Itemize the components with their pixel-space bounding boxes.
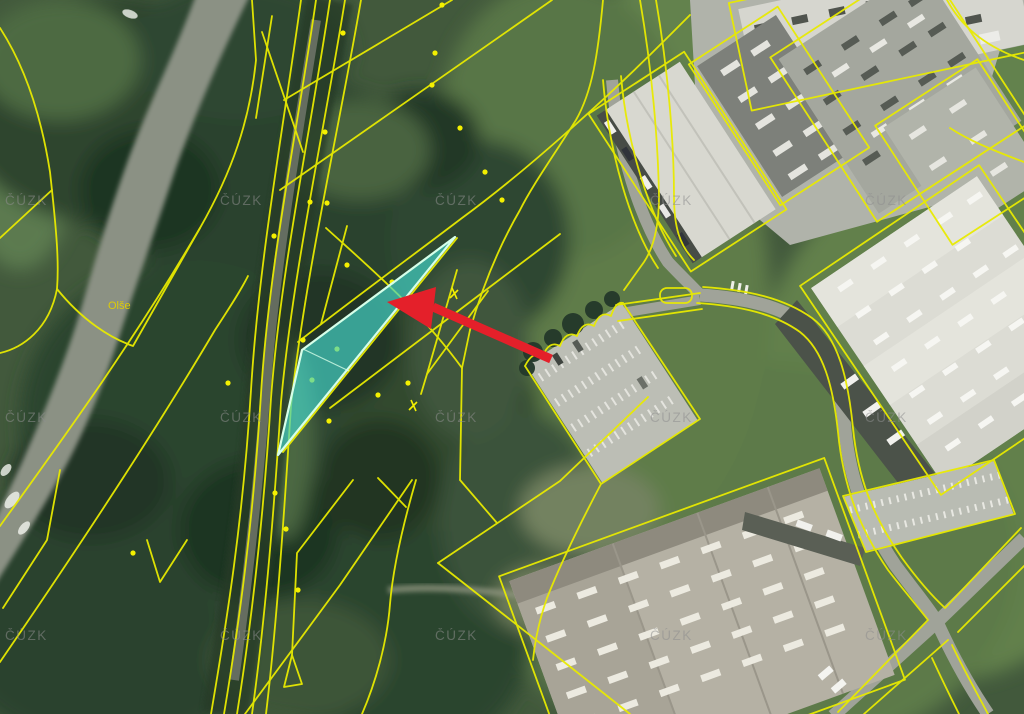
cuzk-watermark: ČÚZK: [220, 628, 263, 643]
cuzk-watermark: ČÚZK: [435, 410, 478, 425]
cuzk-watermark: ČÚZK: [865, 628, 908, 643]
cuzk-watermark: ČÚZK: [220, 410, 263, 425]
cuzk-watermark: ČÚZK: [650, 410, 693, 425]
cuzk-watermark: ČÚZK: [650, 193, 693, 208]
cuzk-watermark: ČÚZK: [5, 628, 48, 643]
cuzk-watermark: ČÚZK: [5, 193, 48, 208]
cuzk-watermark: ČÚZK: [435, 193, 478, 208]
map-canvas[interactable]: Olše ČÚZK ČÚZK ČÚZK ČÚZK ČÚZK ČÚZK ČÚZK …: [0, 0, 1024, 714]
river-label: Olše: [108, 300, 131, 312]
cuzk-watermark: ČÚZK: [650, 628, 693, 643]
cuzk-watermark: ČÚZK: [865, 410, 908, 425]
cuzk-watermark: ČÚZK: [5, 410, 48, 425]
cuzk-watermark: ČÚZK: [865, 193, 908, 208]
cuzk-watermark: ČÚZK: [220, 193, 263, 208]
cuzk-watermark: ČÚZK: [435, 628, 478, 643]
